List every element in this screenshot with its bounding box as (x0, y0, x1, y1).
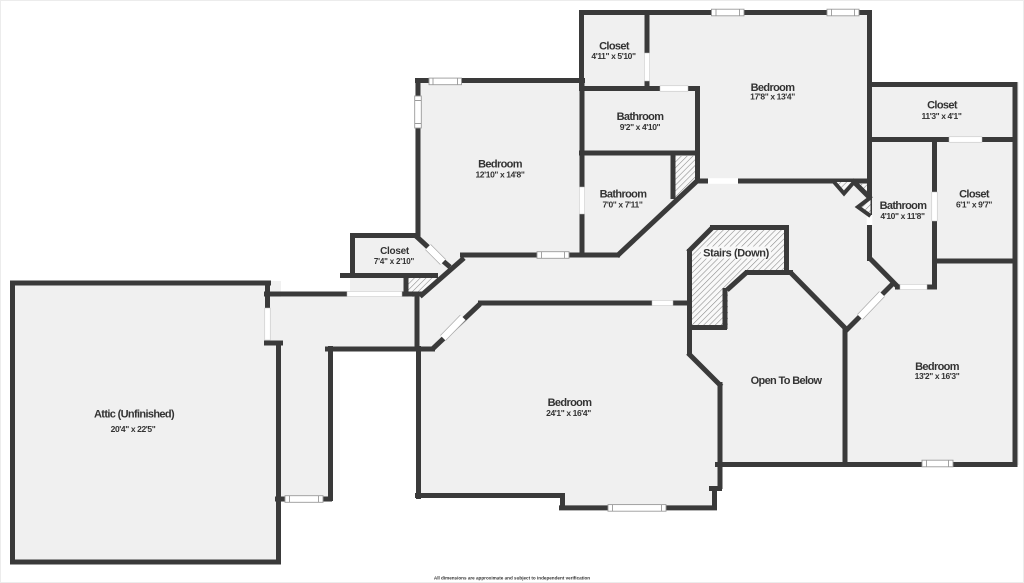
svg-text:24'1" x 16'4": 24'1" x 16'4" (546, 408, 591, 418)
svg-text:12'10" x 14'8": 12'10" x 14'8" (475, 169, 524, 179)
svg-text:20'4" x 22'5": 20'4" x 22'5" (111, 424, 156, 434)
svg-text:Open To Below: Open To Below (751, 375, 823, 387)
svg-text:17'8" x 13'4": 17'8" x 13'4" (750, 91, 795, 101)
svg-text:7'4" x 2'10": 7'4" x 2'10" (374, 257, 415, 266)
svg-text:11'3" x 4'1": 11'3" x 4'1" (922, 111, 962, 121)
svg-text:4'11" x 5'10": 4'11" x 5'10" (591, 51, 636, 61)
svg-text:Closet: Closet (380, 246, 410, 257)
svg-text:9'2" x 4'10": 9'2" x 4'10" (620, 122, 661, 132)
svg-text:Closet: Closet (927, 100, 958, 112)
svg-text:7'0" x 7'11": 7'0" x 7'11" (603, 200, 643, 210)
svg-text:Attic (Unfinished): Attic (Unfinished) (94, 409, 175, 421)
svg-text:All dimensions are approximate: All dimensions are approximate and subje… (434, 576, 590, 581)
svg-text:6'1" x 9'7": 6'1" x 9'7" (956, 199, 992, 209)
svg-text:4'10" x 11'8": 4'10" x 11'8" (880, 211, 925, 221)
svg-text:Stairs (Down): Stairs (Down) (703, 248, 769, 260)
svg-text:Bedroom: Bedroom (548, 397, 593, 409)
svg-text:13'2" x 16'3": 13'2" x 16'3" (915, 371, 960, 381)
